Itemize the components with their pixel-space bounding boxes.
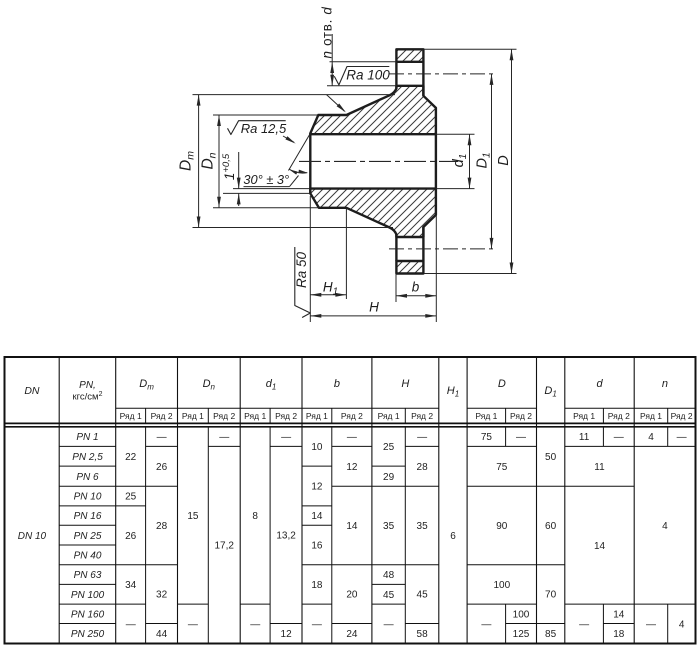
svg-text:PN 10: PN 10	[74, 492, 102, 503]
svg-text:45: 45	[417, 590, 429, 601]
svg-text:—: —	[516, 432, 526, 443]
svg-text:H: H	[369, 300, 379, 315]
svg-text:17,2: 17,2	[214, 541, 234, 552]
svg-text:15: 15	[187, 511, 199, 522]
svg-text:12: 12	[346, 462, 358, 473]
svg-text:b: b	[334, 378, 340, 390]
svg-text:PN 100: PN 100	[71, 590, 105, 601]
svg-text:34: 34	[125, 580, 137, 591]
svg-text:14: 14	[594, 541, 606, 552]
svg-text:16: 16	[311, 541, 323, 552]
svg-text:90: 90	[496, 521, 508, 532]
svg-text:11: 11	[594, 462, 605, 473]
svg-text:—: —	[384, 619, 394, 630]
svg-text:Ряд 1: Ряд 1	[640, 411, 662, 421]
svg-text:20: 20	[346, 590, 358, 601]
svg-text:35: 35	[383, 521, 395, 532]
svg-text:70: 70	[545, 590, 557, 601]
svg-text:DN: DN	[24, 385, 40, 397]
svg-text:—: —	[417, 432, 427, 443]
svg-text:PN 1: PN 1	[76, 432, 98, 443]
svg-text:PN 2,5: PN 2,5	[72, 452, 103, 463]
svg-text:—: —	[646, 619, 656, 630]
svg-text:4: 4	[679, 619, 685, 630]
svg-text:n отв. d: n отв. d	[320, 6, 335, 58]
svg-text:PN 40: PN 40	[74, 551, 102, 562]
svg-text:Ряд 2: Ряд 2	[510, 411, 532, 421]
svg-text:PN 250: PN 250	[71, 629, 105, 640]
svg-text:D: D	[498, 378, 506, 390]
svg-text:d: d	[596, 378, 603, 390]
svg-text:50: 50	[545, 452, 557, 463]
svg-text:Ряд 1: Ряд 1	[306, 411, 328, 421]
svg-text:PN,: PN,	[79, 380, 96, 391]
svg-text:Ряд 2: Ряд 2	[151, 411, 173, 421]
svg-text:28: 28	[156, 521, 168, 532]
svg-text:85: 85	[545, 629, 557, 640]
svg-text:Ряд 2: Ряд 2	[671, 411, 693, 421]
svg-text:H: H	[401, 378, 409, 390]
svg-text:29: 29	[383, 472, 395, 483]
svg-text:4: 4	[662, 521, 668, 532]
svg-text:PN 6: PN 6	[76, 472, 99, 483]
svg-text:58: 58	[417, 629, 429, 640]
svg-text:—: —	[579, 619, 589, 630]
svg-text:6: 6	[450, 531, 456, 542]
svg-text:14: 14	[346, 521, 358, 532]
svg-text:Ряд 2: Ряд 2	[213, 411, 235, 421]
svg-text:125: 125	[513, 629, 530, 640]
svg-text:—: —	[481, 619, 491, 630]
svg-text:60: 60	[545, 521, 557, 532]
svg-text:13,2: 13,2	[276, 531, 296, 542]
svg-text:Ряд 2: Ряд 2	[608, 411, 630, 421]
svg-text:18: 18	[311, 580, 323, 591]
svg-text:PN 25: PN 25	[74, 531, 102, 542]
svg-text:45: 45	[383, 590, 395, 601]
svg-text:D: D	[496, 155, 512, 165]
svg-text:48: 48	[383, 570, 395, 581]
svg-text:—: —	[677, 432, 687, 443]
svg-text:DN 10: DN 10	[18, 531, 47, 542]
svg-text:14: 14	[311, 511, 323, 522]
svg-text:25: 25	[383, 442, 395, 453]
svg-text:—: —	[614, 432, 624, 443]
svg-text:PN 63: PN 63	[74, 570, 102, 581]
svg-text:30° ± 3°: 30° ± 3°	[243, 172, 289, 187]
svg-text:Ряд 1: Ряд 1	[244, 411, 266, 421]
svg-text:100: 100	[493, 580, 510, 591]
svg-text:PN 160: PN 160	[71, 609, 105, 620]
svg-text:—: —	[219, 432, 229, 443]
svg-text:25: 25	[125, 492, 137, 503]
svg-text:28: 28	[417, 462, 429, 473]
svg-text:n: n	[662, 378, 668, 390]
svg-text:4: 4	[648, 432, 654, 443]
svg-text:—: —	[281, 432, 291, 443]
svg-text:75: 75	[496, 462, 508, 473]
svg-text:75: 75	[481, 432, 493, 443]
svg-text:PN 16: PN 16	[74, 511, 102, 522]
svg-text:—: —	[312, 619, 322, 630]
svg-text:—: —	[347, 432, 357, 443]
svg-text:Ряд 1: Ряд 1	[378, 411, 400, 421]
svg-text:12: 12	[311, 482, 323, 493]
svg-text:10: 10	[311, 442, 323, 453]
svg-text:Ra 50: Ra 50	[294, 251, 309, 288]
svg-text:18: 18	[613, 629, 625, 640]
svg-text:32: 32	[156, 590, 168, 601]
svg-text:—: —	[188, 619, 198, 630]
svg-text:35: 35	[417, 521, 429, 532]
svg-text:Ra 12,5: Ra 12,5	[241, 121, 287, 136]
svg-text:Ряд 1: Ряд 1	[120, 411, 142, 421]
svg-text:12: 12	[281, 629, 293, 640]
svg-text:—: —	[126, 619, 136, 630]
svg-text:Ряд 2: Ряд 2	[275, 411, 297, 421]
svg-text:кгс/см2: кгс/см2	[73, 391, 103, 403]
svg-text:100: 100	[513, 609, 530, 620]
svg-text:14: 14	[613, 609, 625, 620]
svg-text:Ряд 2: Ряд 2	[341, 411, 363, 421]
svg-text:Ряд 2: Ряд 2	[411, 411, 433, 421]
svg-text:11: 11	[579, 432, 590, 443]
svg-text:26: 26	[125, 531, 137, 542]
svg-text:44: 44	[156, 629, 168, 640]
svg-text:Ряд 1: Ряд 1	[182, 411, 204, 421]
svg-text:22: 22	[125, 452, 137, 463]
svg-text:Ряд 1: Ряд 1	[475, 411, 497, 421]
svg-text:b: b	[412, 280, 420, 295]
svg-text:Ряд 1: Ряд 1	[573, 411, 595, 421]
svg-text:8: 8	[252, 511, 258, 522]
svg-text:24: 24	[346, 629, 358, 640]
svg-text:—: —	[250, 619, 260, 630]
svg-text:26: 26	[156, 462, 168, 473]
svg-text:—: —	[157, 432, 167, 443]
svg-text:Ra 100: Ra 100	[346, 68, 390, 83]
